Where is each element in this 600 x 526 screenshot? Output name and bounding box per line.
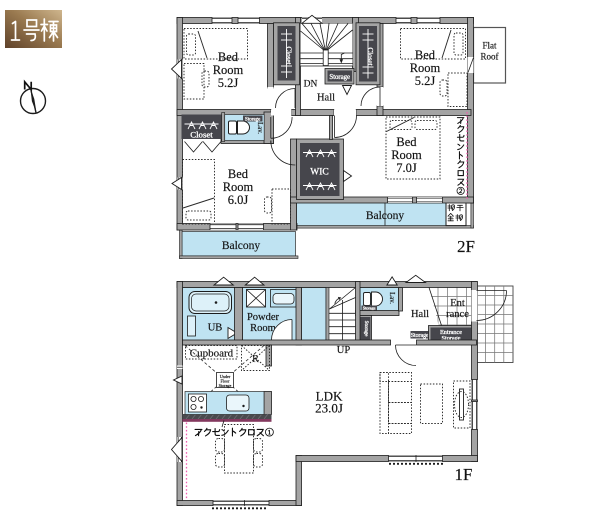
svg-text:Room: Room <box>410 61 441 75</box>
svg-text:Lav.: Lav. <box>388 292 395 304</box>
svg-text:1F: 1F <box>455 465 473 484</box>
svg-text:Lav.: Lav. <box>256 122 263 134</box>
svg-text:Room: Room <box>391 148 422 162</box>
svg-text:Ent: Ent <box>450 298 465 309</box>
svg-text:Balcony: Balcony <box>366 210 405 222</box>
svg-text:Storage: Storage <box>411 333 429 339</box>
svg-text:Powder: Powder <box>247 312 280 323</box>
svg-text:Room: Room <box>250 323 276 334</box>
svg-text:7.0J: 7.0J <box>396 161 417 175</box>
svg-text:Bed: Bed <box>228 167 249 181</box>
svg-text:Bed: Bed <box>396 135 417 149</box>
svg-text:rance: rance <box>446 309 469 320</box>
svg-text:Cupboard: Cupboard <box>190 348 234 360</box>
svg-text:Hall: Hall <box>411 309 429 320</box>
svg-text:Storage: Storage <box>219 383 232 388</box>
svg-text:Closet: Closet <box>366 48 374 66</box>
svg-text:Hall: Hall <box>317 93 335 104</box>
svg-text:5.2J: 5.2J <box>415 74 436 88</box>
svg-text:23.0J: 23.0J <box>315 401 343 416</box>
svg-text:Bed: Bed <box>415 48 436 62</box>
svg-text:Flat: Flat <box>482 41 497 51</box>
svg-text:Storage: Storage <box>363 306 376 311</box>
svg-text:Storage: Storage <box>363 321 369 338</box>
svg-text:Room: Room <box>223 180 254 194</box>
svg-text:UB: UB <box>208 323 223 334</box>
svg-text:Closet: Closet <box>190 130 213 140</box>
svg-text:R: R <box>252 354 259 365</box>
svg-text:2F: 2F <box>457 237 475 256</box>
svg-text:Room: Room <box>213 63 244 77</box>
svg-text:Roof: Roof <box>481 52 499 62</box>
svg-text:Storage: Storage <box>329 74 350 81</box>
svg-text:UP: UP <box>337 345 351 356</box>
svg-text:DN: DN <box>304 80 318 90</box>
svg-text:6.0J: 6.0J <box>228 193 249 207</box>
svg-text:WIC: WIC <box>310 168 328 178</box>
svg-text:5.2J: 5.2J <box>218 76 239 90</box>
svg-text:Closet: Closet <box>285 47 293 65</box>
svg-text:Balcony: Balcony <box>222 240 261 252</box>
svg-text:Bed: Bed <box>218 50 239 64</box>
